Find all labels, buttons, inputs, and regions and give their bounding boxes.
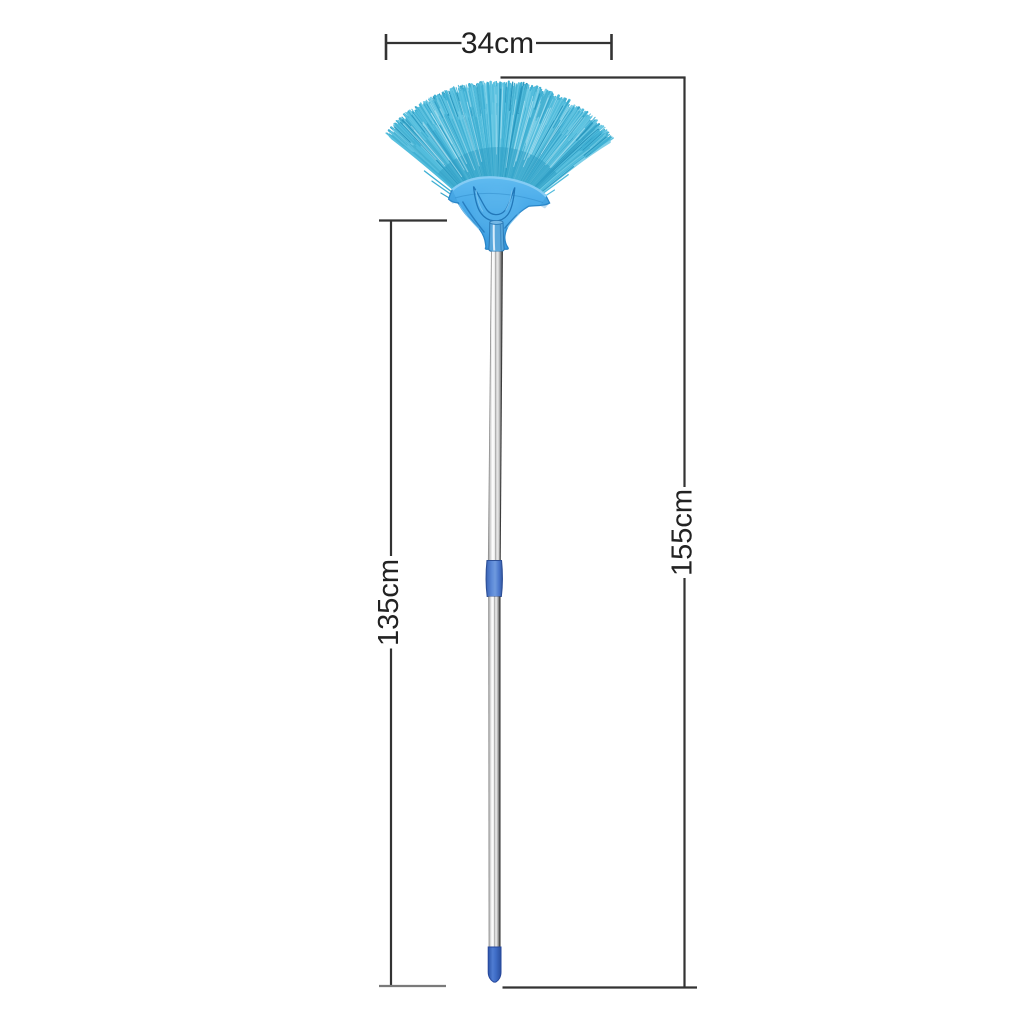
svg-text:34cm: 34cm bbox=[461, 27, 534, 60]
svg-text:155cm: 155cm bbox=[667, 489, 699, 576]
svg-text:135cm: 135cm bbox=[373, 559, 405, 646]
